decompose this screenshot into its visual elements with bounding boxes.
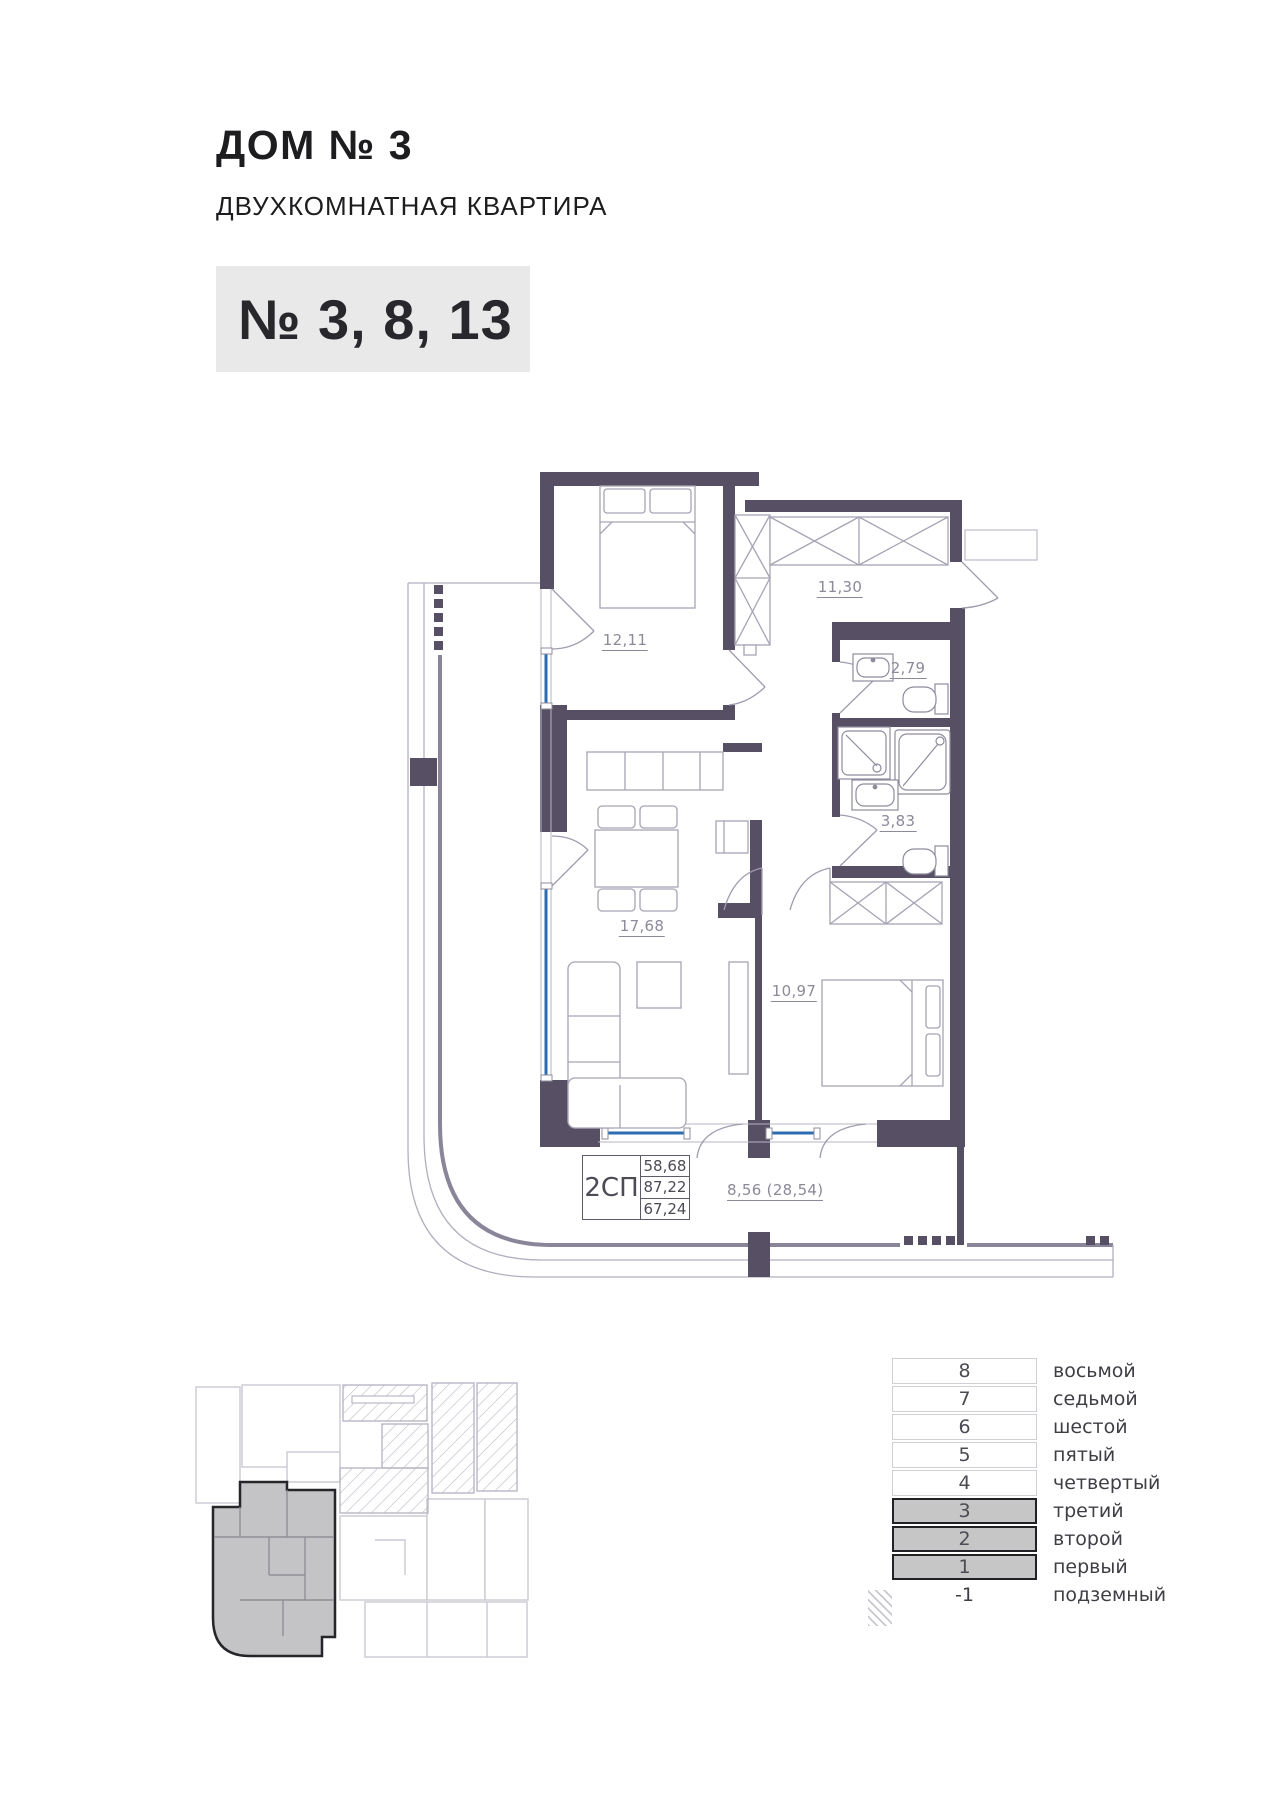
hall-closet (770, 517, 948, 565)
floor-row-6[interactable]: 6 шестой (892, 1414, 1223, 1440)
shower-large (895, 730, 950, 794)
floor-row-4[interactable]: 4 четвертый (892, 1470, 1223, 1496)
bed-2 (822, 980, 943, 1086)
floor-label: восьмой (1053, 1360, 1223, 1382)
kitchen-counter (587, 752, 723, 790)
floor-number: 1 (892, 1554, 1037, 1580)
floor-label: первый (1053, 1556, 1223, 1578)
wardrobe-tall (735, 515, 770, 655)
area-label-bathroom-large: 3,83 (880, 812, 917, 832)
unit-numbers-badge: № 3, 8, 13 (216, 266, 530, 372)
site-highlighted-building[interactable] (213, 1482, 335, 1656)
area-value-1: 58,68 (641, 1156, 689, 1177)
area-label-hallway: 11,30 (817, 578, 863, 598)
floor-row-5[interactable]: 5 пятый (892, 1442, 1223, 1468)
apartment-type-code: 2СП (583, 1156, 641, 1219)
site-map (196, 1383, 528, 1657)
floor-label: шестой (1053, 1416, 1223, 1438)
bed-1 (600, 486, 695, 608)
floor-row-1-selected[interactable]: 1 первый (892, 1554, 1223, 1580)
house-title: ДОМ № 3 (216, 122, 413, 169)
underground-hatch (868, 1590, 892, 1626)
floor-label: второй (1053, 1528, 1223, 1550)
apartment-type: ДВУХКОМНАТНАЯ КВАРТИРА (216, 191, 607, 222)
floor-number: 7 (892, 1386, 1037, 1412)
apartment-areas: 58,68 87,22 67,24 (641, 1156, 689, 1219)
floor-label: четвертый (1053, 1472, 1223, 1494)
floor-number: 5 (892, 1442, 1037, 1468)
apartment-info-box: 2СП 58,68 87,22 67,24 (582, 1155, 690, 1220)
plan-sheet: ДОМ № 3 ДВУХКОМНАТНАЯ КВАРТИРА № 3, 8, 1… (0, 0, 1280, 1810)
shower-tray (838, 727, 890, 779)
floor-row-7[interactable]: 7 седьмой (892, 1386, 1223, 1412)
floor-row-2-selected[interactable]: 2 второй (892, 1526, 1223, 1552)
floor-number: 3 (892, 1498, 1037, 1524)
floor-row-8[interactable]: 8 восьмой (892, 1358, 1223, 1384)
coffee-table (637, 962, 681, 1008)
area-value-2: 87,22 (641, 1177, 689, 1198)
area-label-bedroom-1: 12,11 (602, 631, 648, 651)
floor-row-3-selected[interactable]: 3 третий (892, 1498, 1223, 1524)
floor-number: -1 (892, 1582, 1037, 1608)
floor-number: 6 (892, 1414, 1037, 1440)
duct (729, 962, 748, 1074)
floor-number: 8 (892, 1358, 1037, 1384)
floor-selector: 8 восьмой 7 седьмой 6 шестой 5 пятый 4 ч… (892, 1358, 1223, 1610)
floor-label: подземный (1053, 1584, 1223, 1606)
wardrobe-2 (830, 882, 942, 924)
dining-set (595, 806, 678, 911)
floor-row-underground[interactable]: -1 подземный (892, 1582, 1223, 1608)
area-label-bedroom-2: 10,97 (771, 982, 817, 1002)
sink-large-bath (852, 780, 898, 810)
floor-label: седьмой (1053, 1388, 1223, 1410)
toilet-large-bath (903, 846, 948, 876)
area-label-bathroom-small: 2,79 (890, 659, 927, 679)
area-value-3: 67,24 (641, 1199, 689, 1219)
sink-small-bath (853, 654, 893, 681)
floor-number: 2 (892, 1526, 1037, 1552)
bath-fixtures (838, 654, 950, 876)
floor-label: третий (1053, 1500, 1223, 1522)
balcony-area-note: 8,56 (28,54) (727, 1181, 823, 1201)
area-label-living-kitchen: 17,68 (619, 917, 665, 937)
floor-number: 4 (892, 1470, 1037, 1496)
tv-stand (716, 821, 748, 853)
floor-label: пятый (1053, 1444, 1223, 1466)
toilet-small-bath (903, 684, 948, 714)
